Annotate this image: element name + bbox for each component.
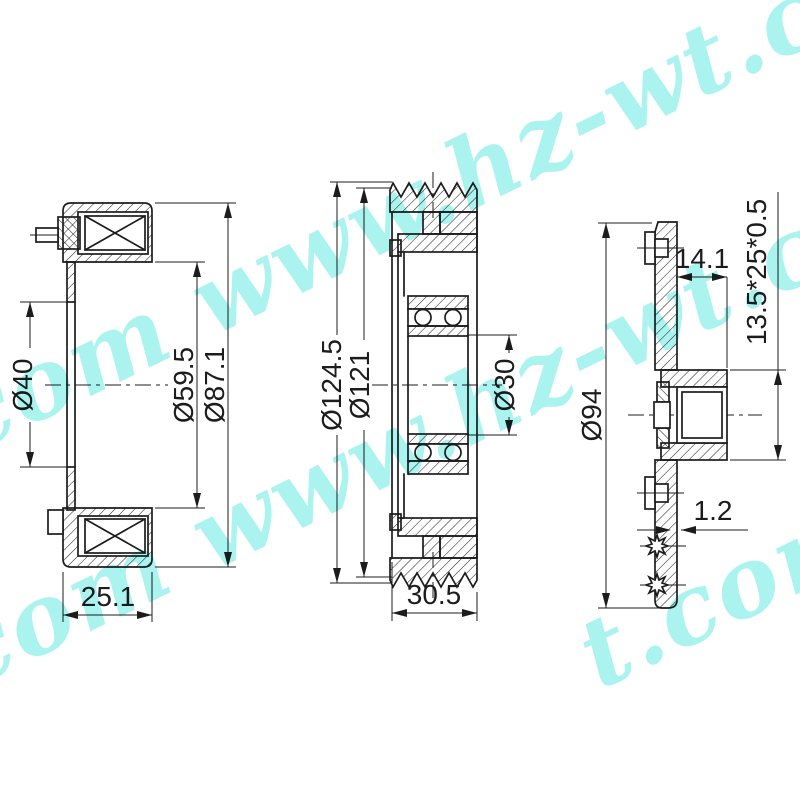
bearing-inner-ring-top (408, 326, 468, 336)
flange-upper (67, 262, 75, 302)
spline-lower (657, 428, 669, 448)
flange-lower (67, 467, 75, 510)
flange-lower (398, 518, 477, 536)
dim-label: 30.5 (407, 579, 462, 610)
spline-center (654, 402, 670, 428)
web-lower (423, 536, 440, 558)
rim-lower (440, 536, 477, 558)
snap-ring-lower (390, 514, 401, 530)
connector-block (58, 217, 80, 249)
dim-label: 1.2 (694, 495, 733, 526)
technical-drawing: Ø40 Ø59.5 Ø87.1 25.1 (0, 0, 800, 800)
flange-tab (48, 510, 63, 534)
hub-flange-lower (661, 443, 727, 460)
bearing-ball (415, 310, 431, 326)
bearing-ball (445, 310, 461, 326)
hub-bore (682, 392, 722, 438)
spline-upper (657, 382, 669, 402)
bearing-outer-ring-top (408, 296, 468, 309)
drawing-page: Ø40 Ø59.5 Ø87.1 25.1 (0, 0, 800, 800)
